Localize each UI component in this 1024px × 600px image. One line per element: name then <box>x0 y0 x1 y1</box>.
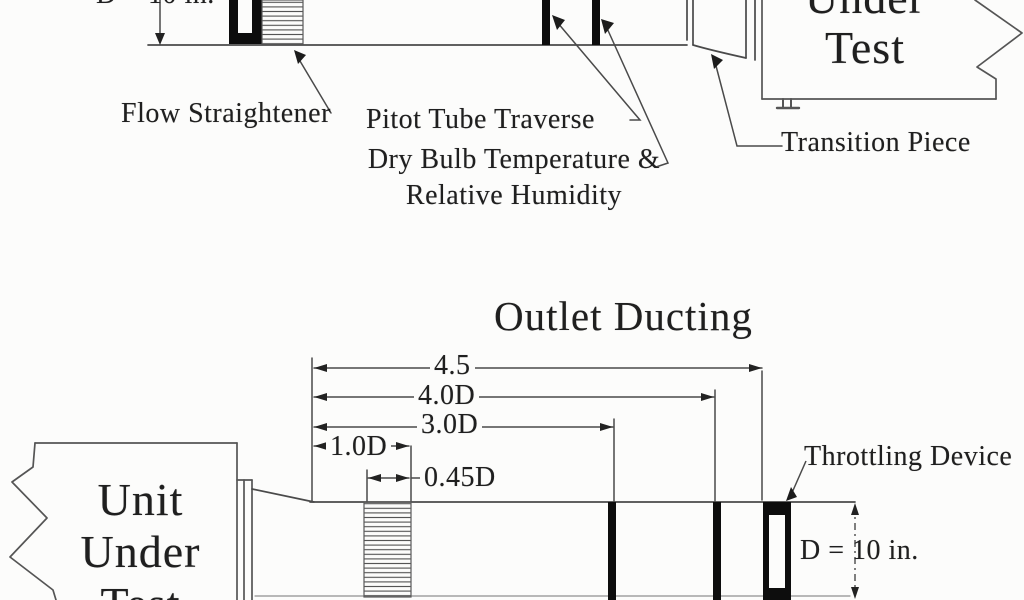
unit-bottom-line1: Unit <box>48 474 233 526</box>
dim-4-5-label: 4.5 <box>430 350 475 382</box>
dry-bulb-label-line1: Dry Bulb Temperature & <box>366 142 662 178</box>
outlet-throttling-device-icon <box>763 502 791 600</box>
throttling-device-label: Throttling Device <box>804 441 1012 473</box>
unit-bottom-line2: Under <box>48 526 233 578</box>
dry-bulb-label: Dry Bulb Temperature & Relative Humidity <box>366 142 662 214</box>
outlet-pitot-probes <box>608 502 721 600</box>
outlet-ducting-title: Outlet Ducting <box>494 292 753 340</box>
flow-straightener-label: Flow Straightener <box>121 98 331 130</box>
unit-bottom-line3: Test <box>48 578 233 600</box>
unit-under-test-text-bottom: Unit Under Test <box>48 474 233 600</box>
outlet-dimension-arrowheads <box>314 364 762 482</box>
outlet-diameter-label: D = 10 in. <box>800 535 919 567</box>
dim-3-0d-label: 3.0D <box>417 409 482 441</box>
duct-test-diagram: D = 10 in. Flow Straightener Pitot Tube … <box>0 0 1024 600</box>
inlet-flow-straightener-block <box>262 0 303 44</box>
inlet-leader-arrowheads <box>294 15 723 69</box>
inlet-diameter-label: D = 10 in. <box>96 0 215 11</box>
pitot-tube-traverse-label: Pitot Tube Traverse <box>366 104 595 136</box>
unit-under-test-text-top: Under Test <box>745 0 985 73</box>
unit-top-line1: Under <box>745 0 985 23</box>
dry-bulb-label-line2: Relative Humidity <box>366 178 662 214</box>
dim-4-0d-label: 4.0D <box>414 380 479 412</box>
throttling-leader-line <box>786 461 806 501</box>
unit-top-line2: Test <box>745 23 985 73</box>
transition-piece-label: Transition Piece <box>781 127 971 159</box>
dim-0-45d-label: 0.45D <box>420 462 500 494</box>
dim-1-0d-label: 1.0D <box>326 431 391 463</box>
outlet-flow-straightener-block <box>364 502 411 597</box>
inlet-throttling-device-icon <box>229 0 262 44</box>
